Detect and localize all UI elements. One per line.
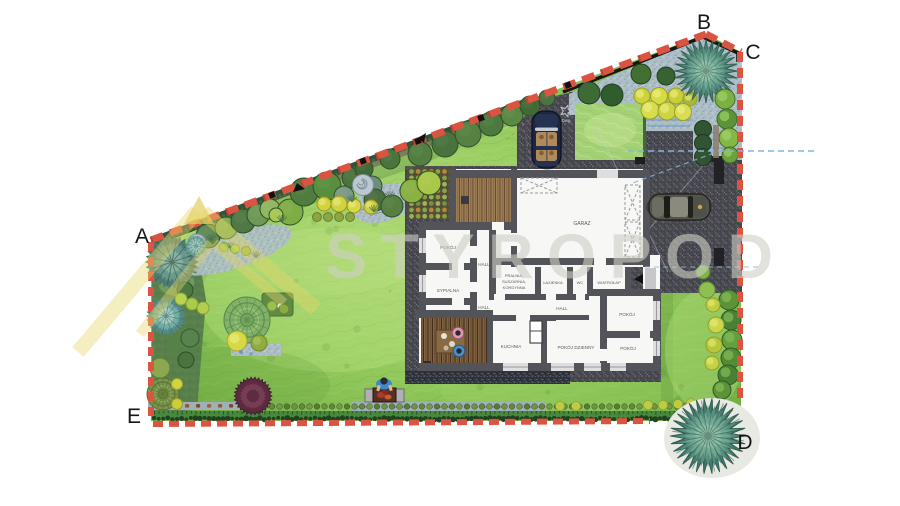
svg-text:A: A	[135, 225, 149, 248]
svg-text:C: C	[745, 41, 760, 64]
svg-text:HALL: HALL	[478, 305, 490, 310]
svg-text:KUCHNIA: KUCHNIA	[501, 344, 523, 349]
svg-text:POKÓJ DZIENNY: POKÓJ DZIENNY	[557, 344, 594, 350]
svg-text:Dwg: Dwg	[561, 118, 570, 123]
svg-text:D: D	[737, 431, 752, 454]
svg-text:B: B	[697, 11, 711, 34]
svg-text:E: E	[127, 405, 141, 428]
svg-text:POKÓJ: POKÓJ	[620, 345, 636, 351]
svg-text:HALL: HALL	[556, 306, 568, 311]
svg-text:POKÓJ: POKÓJ	[619, 311, 635, 317]
svg-text:STYROPOD: STYROPOD	[325, 222, 787, 292]
